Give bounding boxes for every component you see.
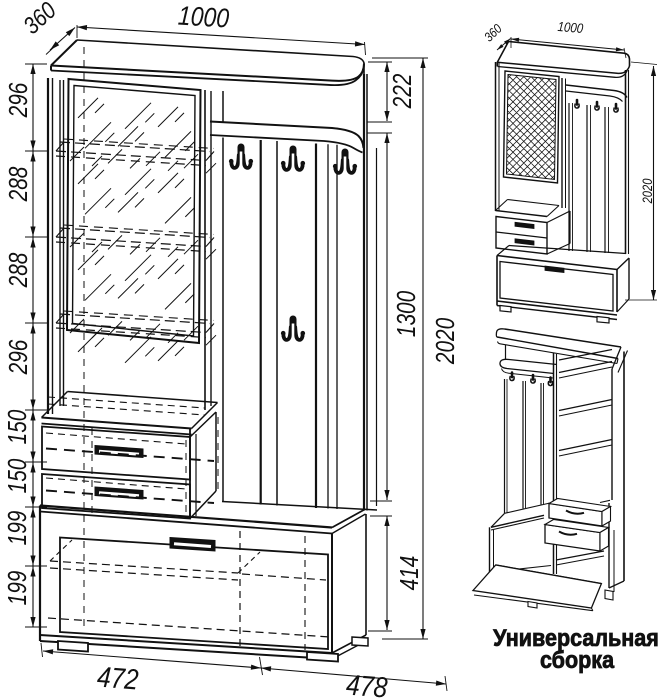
svg-text:414: 414 xyxy=(395,556,424,591)
svg-text:199: 199 xyxy=(3,571,32,606)
svg-text:150: 150 xyxy=(3,459,32,494)
svg-text:472: 472 xyxy=(96,661,140,696)
svg-text:288: 288 xyxy=(4,167,33,203)
svg-text:478: 478 xyxy=(345,669,389,700)
svg-text:2020: 2020 xyxy=(431,318,460,365)
svg-text:222: 222 xyxy=(388,74,417,110)
svg-text:1300: 1300 xyxy=(392,291,421,337)
svg-text:296: 296 xyxy=(4,339,33,375)
svg-text:288: 288 xyxy=(4,253,33,289)
svg-text:2020: 2020 xyxy=(640,179,655,205)
svg-text:1000: 1000 xyxy=(177,1,230,34)
svg-text:сборка: сборка xyxy=(540,646,614,674)
svg-text:296: 296 xyxy=(4,82,33,118)
svg-text:1000: 1000 xyxy=(557,19,584,36)
svg-text:199: 199 xyxy=(3,511,32,546)
svg-text:150: 150 xyxy=(3,410,32,445)
